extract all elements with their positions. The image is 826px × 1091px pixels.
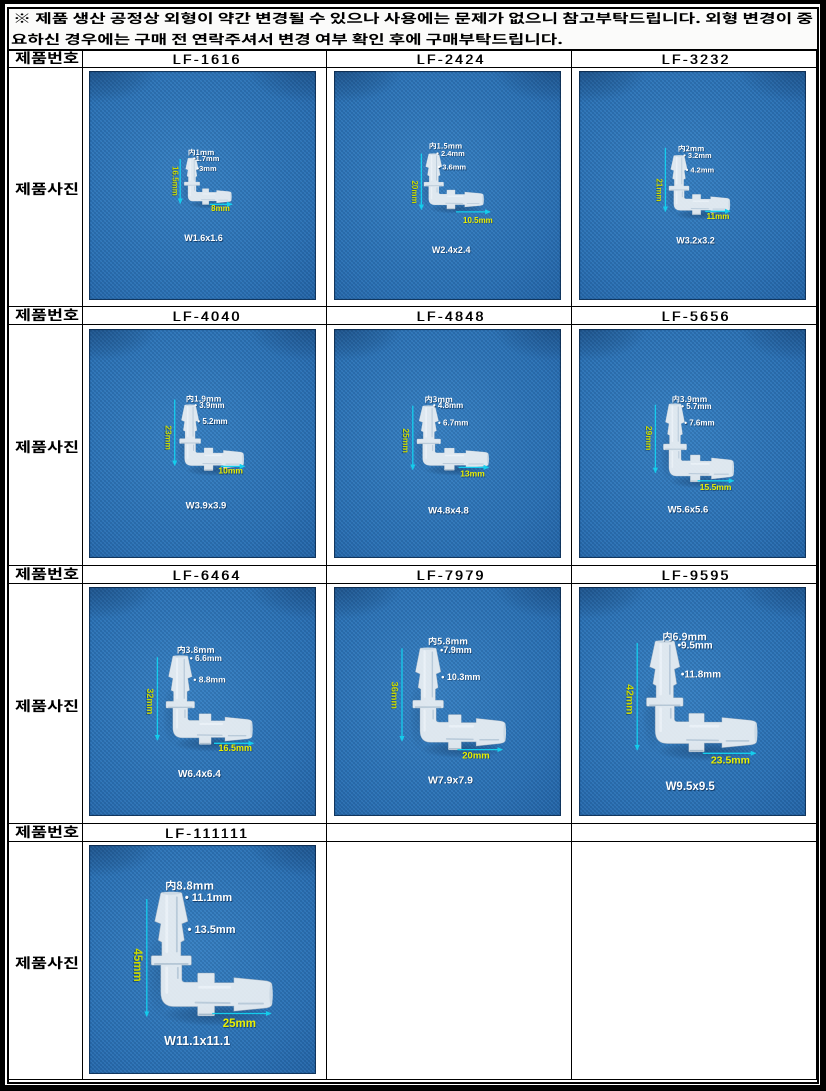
svg-text:•1.7mm: •1.7mm: [193, 154, 220, 163]
svg-text:16.5mm: 16.5mm: [171, 166, 180, 196]
svg-text:• 3.6mm: • 3.6mm: [438, 163, 467, 172]
svg-text:W3.9x3.9: W3.9x3.9: [186, 501, 227, 512]
svg-text:• 11.1mm: • 11.1mm: [185, 892, 232, 904]
svg-text:• 8.8mm: • 8.8mm: [193, 674, 226, 684]
svg-text:20mm: 20mm: [462, 750, 489, 761]
svg-text:W4.8x4.8: W4.8x4.8: [428, 506, 469, 517]
svg-text:23mm: 23mm: [163, 425, 173, 450]
svg-text:W6.4x6.4: W6.4x6.4: [178, 769, 221, 780]
svg-text:•9.5mm: •9.5mm: [678, 641, 713, 652]
svg-text:25mm: 25mm: [401, 428, 411, 453]
svg-text:10.5mm: 10.5mm: [463, 216, 493, 225]
svg-text:• 5.2mm: • 5.2mm: [197, 417, 227, 426]
svg-text:21mm: 21mm: [655, 178, 664, 201]
svg-text:W1.6x1.6: W1.6x1.6: [184, 233, 223, 243]
svg-text:29mm: 29mm: [644, 426, 654, 451]
svg-text:• 6.7mm: • 6.7mm: [438, 418, 468, 427]
svg-text:• 3.2mm: • 3.2mm: [683, 151, 712, 160]
svg-text:W5.6x5.6: W5.6x5.6: [668, 505, 709, 516]
svg-text:W3.2x3.2: W3.2x3.2: [676, 236, 715, 246]
svg-text:15.5mm: 15.5mm: [700, 482, 732, 492]
svg-text:16.5mm: 16.5mm: [219, 743, 253, 753]
svg-text:• 6.6mm: • 6.6mm: [190, 653, 223, 663]
svg-text:• 5.7mm: • 5.7mm: [681, 402, 711, 411]
svg-text:8mm: 8mm: [211, 204, 230, 213]
svg-text:20mm: 20mm: [410, 180, 419, 203]
svg-text:• 4.8mm: • 4.8mm: [433, 401, 463, 410]
svg-text:45mm: 45mm: [131, 948, 143, 981]
svg-text:42mm: 42mm: [624, 684, 636, 714]
svg-text:23.5mm: 23.5mm: [711, 755, 750, 767]
svg-text:32mm: 32mm: [145, 688, 155, 714]
svg-text:•7.9mm: •7.9mm: [440, 645, 472, 655]
svg-text:25mm: 25mm: [223, 1018, 256, 1030]
svg-text:11mm: 11mm: [707, 212, 730, 221]
svg-text:• 4.2mm: • 4.2mm: [686, 165, 715, 174]
svg-text:W2.4x2.4: W2.4x2.4: [432, 245, 471, 255]
svg-text:36mm: 36mm: [388, 681, 399, 708]
svg-text:• 2.4mm: • 2.4mm: [436, 149, 465, 158]
svg-text:•3mm: •3mm: [197, 164, 217, 173]
svg-text:• 7.6mm: • 7.6mm: [684, 419, 714, 428]
svg-text:W11.1x11.1: W11.1x11.1: [164, 1034, 230, 1048]
svg-text:• 10.3mm: • 10.3mm: [441, 672, 480, 682]
svg-text:W7.9x7.9: W7.9x7.9: [428, 774, 473, 786]
svg-text:• 13.5mm: • 13.5mm: [188, 924, 236, 936]
svg-text:10mm: 10mm: [218, 466, 243, 476]
svg-text:•11.8mm: •11.8mm: [681, 670, 721, 681]
svg-text:• 3.9mm: • 3.9mm: [194, 401, 224, 410]
svg-text:13mm: 13mm: [460, 469, 485, 479]
svg-text:W9.5x9.5: W9.5x9.5: [666, 781, 716, 793]
